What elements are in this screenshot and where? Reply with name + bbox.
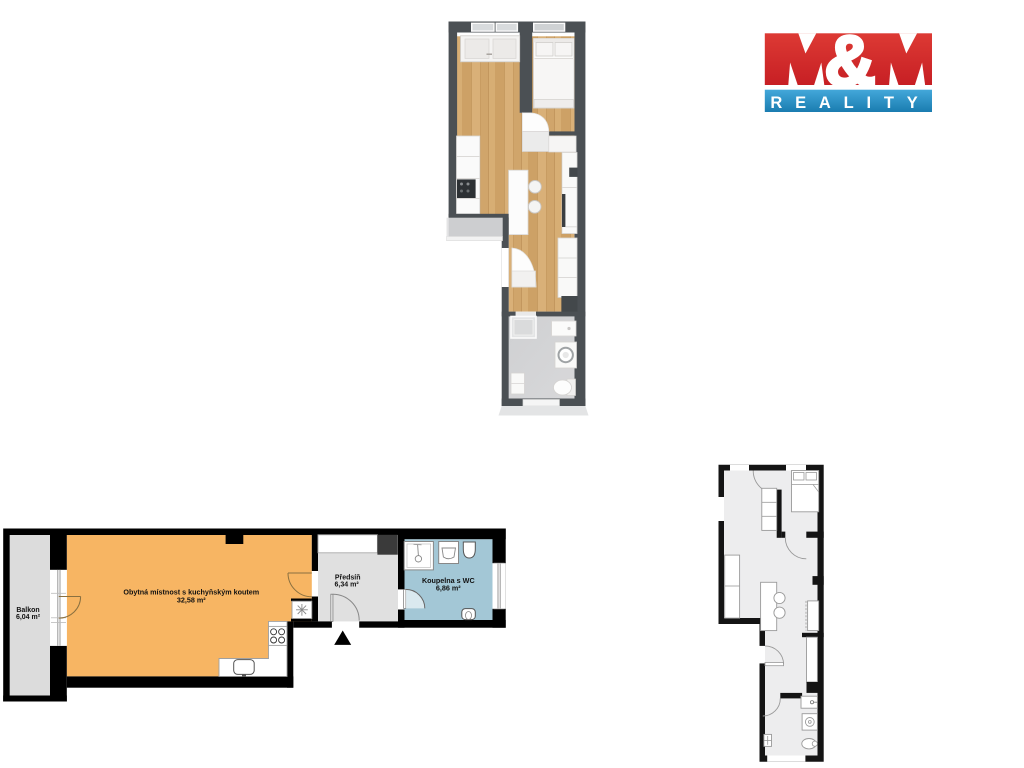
svg-text:REALITY: REALITY xyxy=(770,94,930,112)
svg-text:Předsíň: Předsíň xyxy=(335,574,361,581)
svg-text:6,34 m²: 6,34 m² xyxy=(335,581,360,588)
svg-text:6,86 m²: 6,86 m² xyxy=(436,584,461,593)
svg-text:Balkon: Balkon xyxy=(16,607,39,614)
svg-text:&: & xyxy=(824,23,875,102)
svg-text:32,58 m²: 32,58 m² xyxy=(177,595,206,604)
svg-text:6,04 m²: 6,04 m² xyxy=(16,614,41,621)
